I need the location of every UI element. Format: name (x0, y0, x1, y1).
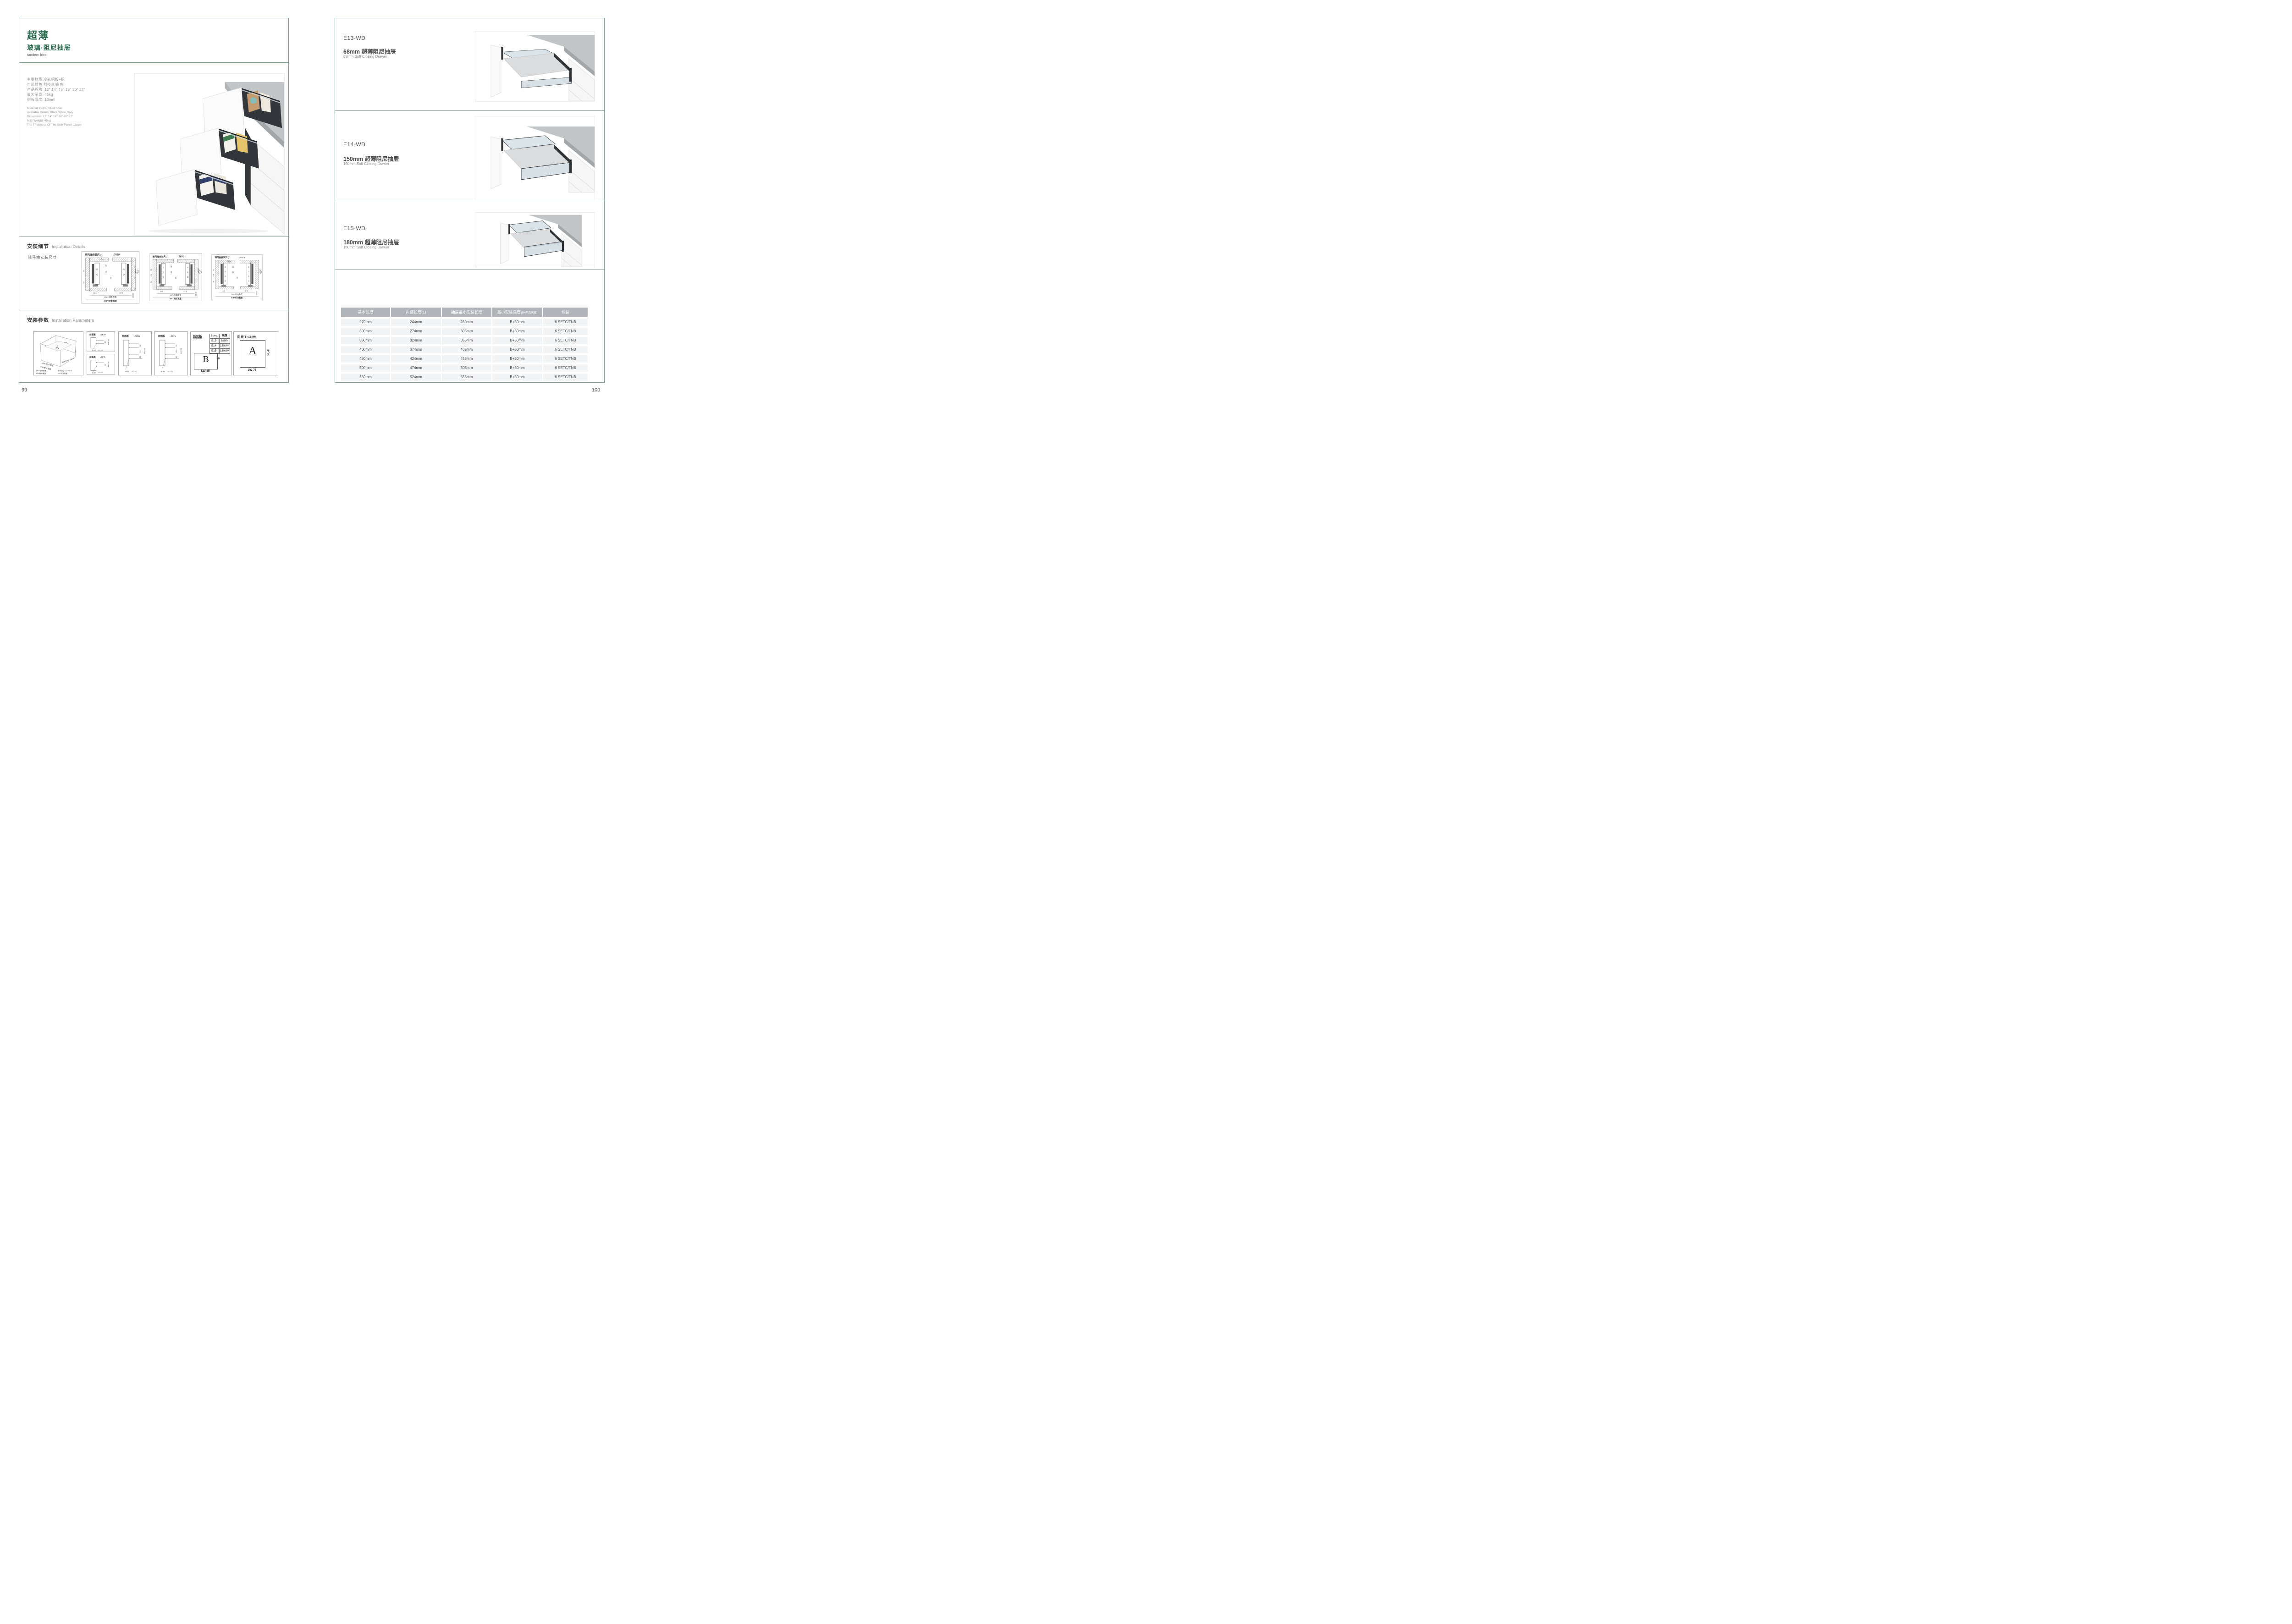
cabinet-render-illustration (135, 74, 284, 235)
product-photo-e14 (475, 116, 595, 200)
svg-text:-707H: -707H (239, 256, 246, 259)
svg-text:195: 195 (200, 270, 202, 273)
install-diagram-707h: 骑马抽安装尺寸 -707H (211, 247, 263, 305)
install-diagram-707g: 骑马抽安装尺寸 -707G (149, 248, 202, 304)
svg-text:前面板: 前面板 (89, 333, 96, 336)
svg-text:Min36: Min36 (132, 293, 134, 298)
svg-text:LW=柜体净宽: LW=柜体净宽 (231, 293, 242, 296)
svg-text:KB=柜体宽度: KB=柜体宽度 (170, 297, 182, 300)
spec-line: The Thickness Of The Side Panel: 13mm (27, 123, 82, 127)
svg-text:骑马抽安装尺寸: 骑马抽安装尺寸 (215, 256, 230, 259)
svg-text:4-ø2: 4-ø2 (125, 370, 129, 373)
back-panel-spec-table: Spec. 高度 E13-WD68MME14-WD150MME15-WD180M… (209, 334, 230, 354)
col-header: 包装 (543, 308, 588, 317)
svg-text:16.5: 16.5 (222, 290, 225, 292)
table-cell: 6 SETC/TNB (543, 346, 588, 353)
table-row: E13-WD68MM (209, 339, 230, 344)
spec-table-body: 270mm244mm280mmB+50mm6 SETC/TNB300mm274m… (341, 319, 589, 381)
spec-line: Max Weight: 45kg (27, 119, 82, 123)
back-panel-sketch: B (194, 353, 218, 369)
product-photo-e15 (475, 212, 595, 267)
page-right: E13-WD 68mm 超薄阻尼抽屉 68mm Soft Closing Dra… (335, 18, 605, 383)
table-cell: 6 SETC/TNB (543, 355, 588, 363)
svg-text:9: 9 (228, 260, 229, 262)
product-name-en-e13: 68mm Soft Closing Drawer (343, 55, 387, 59)
table-cell: 555mm (442, 374, 491, 381)
param-iso-diagram: B A LW=柜体净宽 KB=柜体宽度 柜体内空LT=NL+3 LW=柜体净宽 … (33, 331, 83, 375)
product-name-en-e14: 150mm Soft Closing Drawer (343, 162, 389, 166)
svg-text:LW=柜体净宽: LW=柜体净宽 (36, 369, 46, 372)
table-cell: 270mm (341, 319, 390, 326)
param-back-panel: 后背板 T=16MM Spec. 高度 E13-WD68MME14-WD150M… (190, 331, 232, 375)
svg-text:16: 16 (110, 277, 112, 279)
spec-line: Material: Cold-Rolled Steel (27, 106, 82, 110)
svg-text:前面板: 前面板 (89, 356, 96, 359)
table-row: 350mm324mm355mmB+50mm6 SETC/TNB (341, 337, 589, 344)
svg-text:20: 20 (232, 266, 234, 268)
section-heading-zh: 安装参数 (27, 316, 49, 324)
param-front-panel-707g: 前面板 -707G 32 64 32 min 54 4-ø2 +0.2 -0.1 (118, 331, 152, 375)
col-header: 内部长度(L) (391, 308, 441, 317)
table-row: 270mm244mm280mmB+50mm6 SETC/TNB (341, 319, 589, 326)
svg-text:min 54: min 54 (143, 348, 146, 354)
width-label: LW-85 (194, 369, 217, 373)
page-subtitle: 玻璃·阻尼抽屉 (27, 43, 71, 52)
svg-text:-707L: -707L (100, 356, 106, 358)
svg-text:4-ø2: 4-ø2 (161, 370, 165, 373)
col-header: 基本长度 (341, 308, 390, 317)
page-left: 超薄 玻璃·阻尼抽屉 tandem box 主要材质:冷轧钢板+铝可选颜色:科技… (19, 18, 289, 383)
divider (335, 270, 604, 270)
svg-text:2-ø2: 2-ø2 (92, 372, 96, 374)
table-cell: 550mm (341, 374, 390, 381)
spec-line: 产品规格: 12" 14" 16" 18" 20" 22" (27, 87, 85, 92)
param-front-panel-707p-l: 前面板 -707P 32 min 54 2-ø2 +0.2 -0.1 前面板 (87, 331, 115, 374)
product-model-e13: E13-WD (343, 35, 365, 41)
table-cell: 180MM (219, 349, 230, 354)
col-header: 抽屉最小安装长度 (442, 308, 491, 317)
divider (19, 62, 288, 63)
table-cell: 424mm (391, 355, 441, 363)
svg-text:37.5: 37.5 (119, 292, 123, 294)
param-bottom-panel: 底 板 T=16MM A NL-6 LW-75 (233, 331, 278, 375)
svg-text:KB=柜体宽度: KB=柜体宽度 (231, 296, 243, 299)
svg-text:16.5: 16.5 (93, 292, 97, 294)
svg-text:NL=标准长度: NL=标准长度 (58, 372, 67, 374)
table-cell: B+50mm (492, 319, 542, 326)
table-cell: 6 SETC/TNB (543, 319, 588, 326)
svg-text:37.5: 37.5 (245, 290, 248, 292)
table-cell: B+50mm (492, 374, 542, 381)
table-cell: 6 SETC/TNB (543, 337, 588, 344)
table-row: 450mm424mm455mmB+50mm6 SETC/TNB (341, 355, 589, 363)
divider (335, 201, 604, 201)
svg-text:20: 20 (171, 266, 172, 268)
table-cell: 524mm (391, 374, 441, 381)
svg-text:min 54: min 54 (108, 361, 110, 367)
specs-en-list: Material: Cold-Rolled SteelAvailable Col… (27, 106, 82, 127)
table-cell: E14-WD (209, 344, 219, 349)
svg-text:37.5: 37.5 (184, 291, 187, 292)
svg-text:32: 32 (105, 271, 107, 273)
svg-text:+0.2 -0.1: +0.2 -0.1 (168, 371, 173, 373)
col-header: 最小安装高度(B=产品高度) (492, 308, 542, 317)
svg-text:+0.2 -0.1: +0.2 -0.1 (132, 371, 137, 373)
svg-text:-707G: -707G (178, 256, 184, 259)
spec-line: Available Colors: Black,White,Gray (27, 110, 82, 115)
svg-text:Min36: Min36 (195, 292, 197, 296)
svg-text:-707G: -707G (134, 335, 140, 338)
table-cell: 305mm (442, 328, 491, 335)
diagram-title: 骑马抽安装尺寸 (85, 253, 102, 256)
svg-text:+0.2 -0.1: +0.2 -0.1 (98, 372, 103, 374)
spec-line: Dimension: 12" 14" 16" 18" 20" 22" (27, 115, 82, 119)
section-heading-en: Installation Parameters (52, 318, 94, 323)
spec-line: 侧板厚度; 13mm (27, 97, 85, 102)
svg-text:Min36: Min36 (256, 291, 258, 295)
page-title: 超薄 (27, 28, 49, 42)
svg-text:柜体内空: LT=NL+3: 柜体内空: LT=NL+3 (58, 369, 72, 372)
svg-text:32: 32 (139, 356, 141, 358)
side-label: NL-6 (268, 349, 270, 355)
spec-line: 主要材质:冷轧钢板+铝 (27, 77, 85, 82)
table-cell: 405mm (442, 346, 491, 353)
table-cell: B+50mm (492, 328, 542, 335)
product-model-e14: E14-WD (343, 141, 365, 148)
svg-text:16.5: 16.5 (160, 291, 163, 292)
page-number-right: 100 (592, 387, 600, 393)
table-row: 400mm374mm405mmB+50mm6 SETC/TNB (341, 346, 589, 353)
table-cell: 280mm (442, 319, 491, 326)
table-cell: 244mm (391, 319, 441, 326)
section-install-details: 安装细节 Installation Details (27, 242, 85, 250)
product-photo-e13 (475, 31, 595, 102)
svg-text:32: 32 (171, 271, 172, 273)
svg-text:9: 9 (167, 259, 168, 261)
svg-text:min 54: min 54 (180, 348, 182, 354)
bottom-panel-sketch: A (240, 340, 265, 368)
svg-text:32: 32 (139, 344, 141, 347)
table-cell: 300mm (341, 328, 390, 335)
svg-text:32: 32 (213, 269, 215, 271)
table-cell: B+50mm (492, 346, 542, 353)
table-cell: 400mm (341, 346, 390, 353)
catalog-spread: 超薄 玻璃·阻尼抽屉 tandem box 主要材质:冷轧钢板+铝可选颜色:科技… (0, 0, 623, 406)
product-model-e15: E15-WD (343, 225, 365, 231)
spec-line: 可选颜色:科技灰/白色 (27, 82, 85, 87)
table-cell: 500mm (341, 364, 390, 372)
front-panel-707l: 前面板 -707L 32 min 54 2-ø2 +0.2 -0.1 (87, 354, 115, 374)
svg-text:前面板: 前面板 (122, 335, 129, 338)
spec-table-header: 基本长度 内部长度(L) 抽屉最小安装长度 最小安装高度(B=产品高度) 包装 (341, 308, 589, 317)
table-cell: 6 SETC/TNB (543, 374, 588, 381)
svg-text:32: 32 (232, 271, 234, 273)
table-row: 550mm524mm555mmB+50mm6 SETC/TNB (341, 374, 589, 381)
table-row: 300mm274mm305mmB+50mm6 SETC/TNB (341, 328, 589, 335)
param-front-panel-707h: 前面板 -707H 32 64 32 min 54 4-ø2 +0.2 -0.1 (154, 331, 188, 375)
table-cell: 450mm (341, 355, 390, 363)
svg-text:32: 32 (150, 269, 152, 271)
table-cell: 474mm (391, 364, 441, 372)
install-diagram-707p: 骑马抽安装尺寸 -707P 9 20 (81, 248, 140, 304)
section-heading-zh: 安装细节 (27, 242, 49, 250)
svg-text:225: 225 (261, 271, 263, 273)
table-cell: 150MM (219, 344, 230, 349)
svg-text:32: 32 (175, 344, 177, 347)
svg-text:64: 64 (175, 350, 177, 352)
svg-text:KB=柜体宽度: KB=柜体宽度 (36, 372, 46, 374)
svg-text:-707P: -707P (100, 334, 106, 336)
spec-table: 基本长度 内部长度(L) 抽屉最小安装长度 最小安装高度(B=产品高度) 包装 … (341, 308, 589, 381)
product-name-en-e15: 180mm Soft Closing Drawer (343, 245, 389, 249)
product-photo-cabinet (134, 73, 285, 236)
table-cell: 6 SETC/TNB (543, 328, 588, 335)
table-row: 500mm474mm505mmB+50mm6 SETC/TNB (341, 364, 589, 372)
svg-text:64: 64 (139, 350, 141, 352)
svg-text:LW=柜体净宽: LW=柜体净宽 (105, 295, 117, 298)
svg-text:2-ø2: 2-ø2 (92, 349, 96, 352)
svg-text:KB=柜体宽度: KB=柜体宽度 (104, 299, 117, 303)
svg-text:20: 20 (105, 264, 107, 266)
svg-text:16: 16 (175, 277, 177, 279)
svg-text:min 54: min 54 (108, 339, 110, 344)
specs-zh-list: 主要材质:冷轧钢板+铝可选颜色:科技灰/白色产品规格: 12" 14" 16" … (27, 77, 85, 102)
svg-text:前面板: 前面板 (158, 335, 165, 338)
svg-text:A: A (55, 345, 59, 350)
table-cell: 6 SETC/TNB (543, 364, 588, 372)
svg-text:9: 9 (101, 257, 102, 259)
svg-text:32: 32 (175, 356, 177, 358)
mini-table-body: E13-WD68MME14-WD150MME15-WD180MM (209, 339, 230, 354)
svg-text:柜体内空LT=NL+3: 柜体内空LT=NL+3 (62, 357, 75, 363)
spec-line: 最大承重: 45kg (27, 92, 85, 97)
table-cell: 355mm (442, 337, 491, 344)
bottom-panel-title: 底 板 T=16MM (237, 334, 256, 339)
table-cell: E13-WD (209, 339, 219, 344)
back-panel-thickness: T=16MM (193, 337, 202, 340)
width-label: LW-75 (240, 369, 264, 372)
table-cell: B+50mm (492, 355, 542, 363)
svg-text:6.4: 6.4 (150, 274, 152, 276)
table-cell: 505mm (442, 364, 491, 372)
page-title-en: tandem box (27, 54, 46, 57)
table-cell: 274mm (391, 328, 441, 335)
table-cell: 324mm (391, 337, 441, 344)
page-number-left: 99 (22, 387, 27, 393)
svg-text:113: 113 (138, 270, 140, 273)
svg-text:16: 16 (237, 277, 238, 279)
divider (19, 237, 288, 237)
svg-text:-707H: -707H (170, 335, 176, 338)
table-cell: B+50mm (492, 337, 542, 344)
svg-text:54: 54 (150, 281, 152, 283)
height-label: H (218, 358, 220, 360)
table-cell: B+50mm (492, 364, 542, 372)
section-install-params: 安装参数 Installation Parameters (27, 316, 94, 324)
section-subheading: 骑马抽安装尺寸 (28, 255, 57, 260)
mini-table-header: Spec. 高度 (209, 334, 230, 339)
table-row: E14-WD150MM (209, 344, 230, 349)
svg-text:6.4: 6.4 (213, 274, 215, 276)
svg-text:32: 32 (105, 364, 106, 366)
front-panel-707p: 前面板 -707P 32 min 54 2-ø2 +0.2 -0.1 (87, 331, 115, 352)
svg-text:+0.2 -0.1: +0.2 -0.1 (98, 349, 103, 351)
svg-text:32: 32 (105, 341, 106, 343)
divider (335, 110, 604, 111)
table-cell: 350mm (341, 337, 390, 344)
table-cell: 68MM (219, 339, 230, 344)
table-cell: 455mm (442, 355, 491, 363)
svg-text:54: 54 (213, 281, 215, 283)
diagram-model: -707P (113, 253, 120, 256)
table-cell: 374mm (391, 346, 441, 353)
svg-text:32: 32 (83, 270, 85, 272)
svg-text:LW=柜体净宽: LW=柜体净宽 (170, 293, 181, 296)
divider (19, 310, 288, 310)
